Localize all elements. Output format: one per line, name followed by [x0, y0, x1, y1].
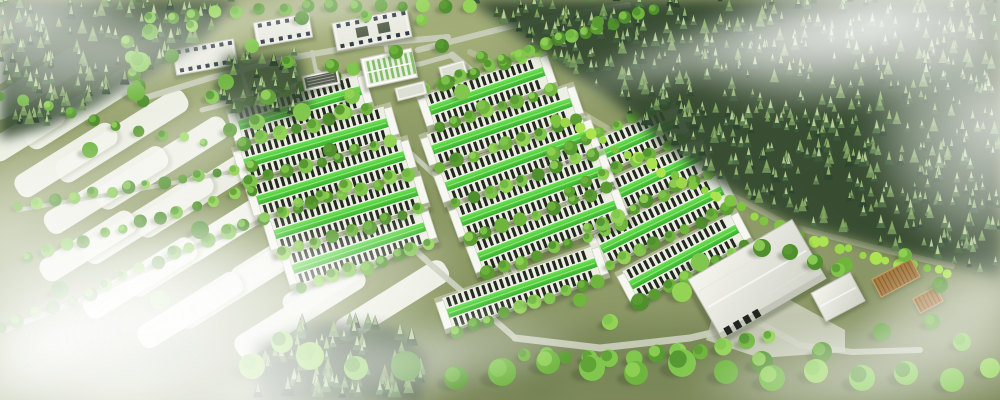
shrub	[599, 136, 607, 144]
tree	[499, 261, 507, 269]
tree	[591, 275, 600, 284]
tree	[500, 180, 509, 189]
tree	[633, 8, 641, 16]
tree	[754, 240, 765, 251]
tree	[611, 210, 620, 219]
tree	[574, 294, 583, 303]
shrub	[623, 151, 631, 159]
tree	[361, 104, 369, 112]
tree	[528, 92, 535, 99]
tree	[619, 12, 627, 20]
tree	[665, 231, 672, 238]
conifer-tree	[587, 0, 596, 1]
tree	[294, 198, 300, 204]
tree	[601, 182, 608, 189]
tree	[603, 315, 613, 325]
shrub	[575, 123, 586, 134]
shrub	[656, 168, 666, 178]
tree	[571, 114, 578, 121]
tree	[618, 251, 627, 260]
tree	[585, 190, 593, 198]
tree	[899, 249, 908, 258]
tree	[464, 111, 472, 119]
shrub	[859, 252, 866, 259]
tree	[350, 144, 357, 151]
shrub	[759, 216, 768, 225]
window	[386, 35, 391, 40]
tree	[370, 141, 376, 147]
window	[405, 31, 410, 36]
shrub	[818, 236, 829, 247]
tree	[580, 356, 596, 372]
tree	[283, 57, 290, 64]
shrub	[870, 252, 883, 265]
tree	[230, 188, 237, 195]
tree	[706, 209, 714, 217]
tree	[317, 158, 323, 164]
tree	[469, 152, 476, 159]
tree	[248, 187, 254, 193]
tree	[535, 128, 543, 136]
conifer-tip	[637, 0, 641, 2]
shrub	[750, 213, 758, 221]
tree	[649, 346, 660, 357]
tree	[694, 345, 703, 354]
tree	[598, 169, 605, 176]
tree	[464, 0, 473, 8]
tree	[435, 163, 442, 170]
tree	[783, 245, 793, 255]
tree	[566, 30, 574, 38]
shrub	[611, 146, 619, 154]
tree	[489, 143, 496, 150]
tree	[555, 33, 562, 40]
tree	[451, 198, 457, 204]
tree	[510, 95, 519, 104]
window	[377, 36, 382, 41]
tree	[564, 141, 573, 150]
tree	[477, 101, 486, 110]
tree	[680, 271, 689, 280]
tree	[532, 251, 539, 258]
tree	[450, 116, 457, 123]
window	[359, 40, 364, 45]
shrub	[671, 171, 680, 180]
tree	[601, 350, 612, 361]
tree	[497, 54, 504, 61]
tree	[450, 153, 459, 162]
tree	[89, 115, 96, 122]
tree	[515, 50, 522, 57]
tree	[639, 194, 648, 203]
shrub	[688, 181, 697, 190]
tree	[516, 175, 523, 182]
tree	[632, 294, 643, 305]
tree	[514, 213, 522, 221]
window	[396, 33, 401, 38]
tree	[596, 218, 605, 227]
tree	[532, 169, 540, 177]
tree	[402, 169, 411, 178]
tree	[516, 257, 524, 265]
tree	[481, 266, 490, 275]
tree	[469, 192, 477, 200]
shrub	[676, 177, 687, 188]
tree	[390, 46, 399, 55]
tree	[480, 227, 488, 235]
shrub	[710, 192, 717, 199]
tree	[528, 295, 537, 304]
tree	[307, 119, 316, 128]
shrub	[586, 128, 597, 139]
conifer-tip	[668, 0, 671, 2]
shrub	[724, 195, 736, 207]
tree	[606, 261, 612, 267]
tree	[581, 176, 588, 183]
tree	[577, 280, 584, 287]
tree	[532, 211, 538, 217]
tree	[355, 183, 364, 192]
tree	[547, 202, 556, 211]
tree	[455, 70, 463, 78]
tree	[281, 165, 289, 173]
tree	[243, 175, 252, 184]
tree	[413, 203, 420, 210]
window	[340, 44, 345, 49]
rendering-canvas	[0, 0, 1000, 400]
tree	[673, 283, 685, 295]
conifer-tree	[718, 0, 723, 1]
window	[368, 38, 373, 43]
shrub	[635, 153, 644, 162]
tree	[593, 17, 600, 24]
tree	[563, 239, 569, 245]
tree	[417, 15, 424, 22]
tree	[664, 280, 673, 289]
tree	[613, 121, 619, 127]
shrub	[701, 187, 708, 194]
tree	[611, 162, 619, 170]
tree	[548, 241, 556, 249]
tree	[335, 105, 345, 115]
shrub	[646, 158, 657, 169]
tree	[583, 233, 589, 239]
shrub	[881, 257, 889, 265]
tree	[441, 76, 450, 85]
tree	[643, 148, 652, 157]
tree	[516, 133, 525, 142]
tree	[680, 225, 686, 231]
tree	[565, 186, 572, 193]
tree	[627, 351, 637, 361]
tree	[547, 147, 556, 156]
tree	[485, 186, 493, 194]
tree	[550, 161, 558, 169]
tree	[435, 122, 442, 129]
tree	[649, 289, 656, 296]
tree	[455, 85, 465, 95]
tree	[669, 350, 686, 367]
tree	[648, 237, 656, 245]
tree	[477, 52, 484, 59]
tree	[348, 63, 356, 71]
tree	[587, 149, 595, 157]
tree	[111, 122, 117, 128]
tree	[649, 5, 656, 12]
conifer-tree	[613, 0, 621, 1]
tree	[263, 170, 270, 177]
aerial-site-rendering	[0, 0, 1000, 400]
window	[269, 38, 274, 43]
tree	[634, 244, 642, 252]
tree	[561, 285, 568, 292]
shrub	[560, 118, 570, 128]
tree	[692, 254, 703, 265]
tree	[292, 124, 298, 130]
tree	[495, 219, 504, 228]
tree	[544, 293, 551, 300]
shrub	[845, 244, 853, 252]
tree	[324, 144, 333, 153]
tree	[498, 102, 504, 108]
tree	[540, 38, 548, 46]
tree	[436, 40, 445, 49]
shrub	[835, 244, 845, 254]
tree	[385, 135, 393, 143]
tree	[808, 255, 818, 265]
tree	[832, 264, 841, 273]
shrub	[737, 202, 747, 212]
shrub	[550, 114, 561, 125]
tree	[659, 190, 667, 198]
tree	[500, 137, 509, 146]
tree	[294, 104, 305, 115]
tree	[345, 89, 355, 99]
tree	[299, 159, 308, 168]
tree	[470, 68, 477, 75]
tree	[326, 60, 335, 69]
tree	[625, 362, 640, 377]
tree	[316, 191, 323, 198]
tree	[384, 171, 393, 180]
tree	[339, 180, 348, 189]
conifer-tree	[510, 0, 520, 1]
tree	[583, 223, 589, 229]
window	[349, 42, 354, 47]
tree	[739, 240, 746, 247]
